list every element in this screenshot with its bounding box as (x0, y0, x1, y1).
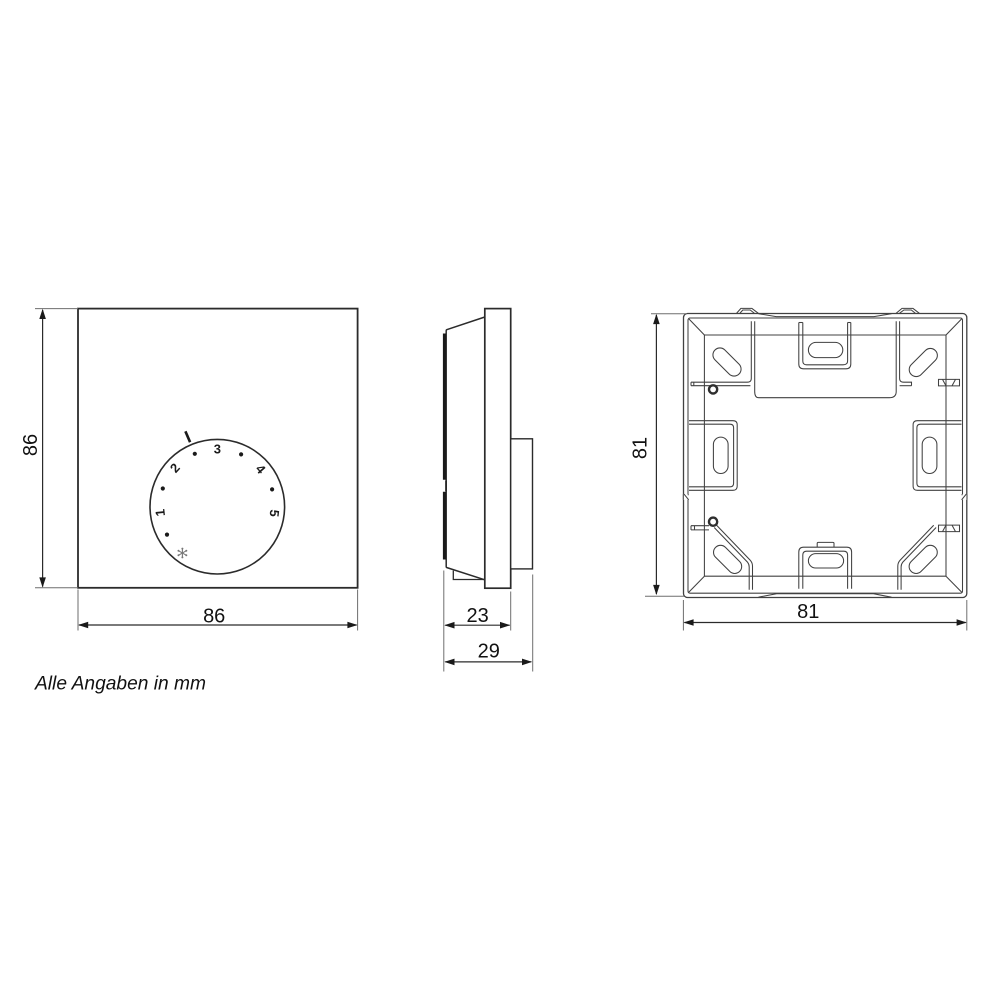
svg-text:Alle Angaben in mm: Alle Angaben in mm (34, 674, 206, 695)
svg-text:3: 3 (214, 442, 221, 457)
svg-text:86: 86 (203, 605, 225, 627)
svg-text:1: 1 (152, 508, 168, 517)
svg-text:81: 81 (630, 437, 652, 459)
svg-text:86: 86 (20, 434, 42, 456)
svg-text:29: 29 (478, 640, 500, 662)
svg-text:81: 81 (797, 601, 819, 623)
svg-text:23: 23 (466, 605, 488, 627)
